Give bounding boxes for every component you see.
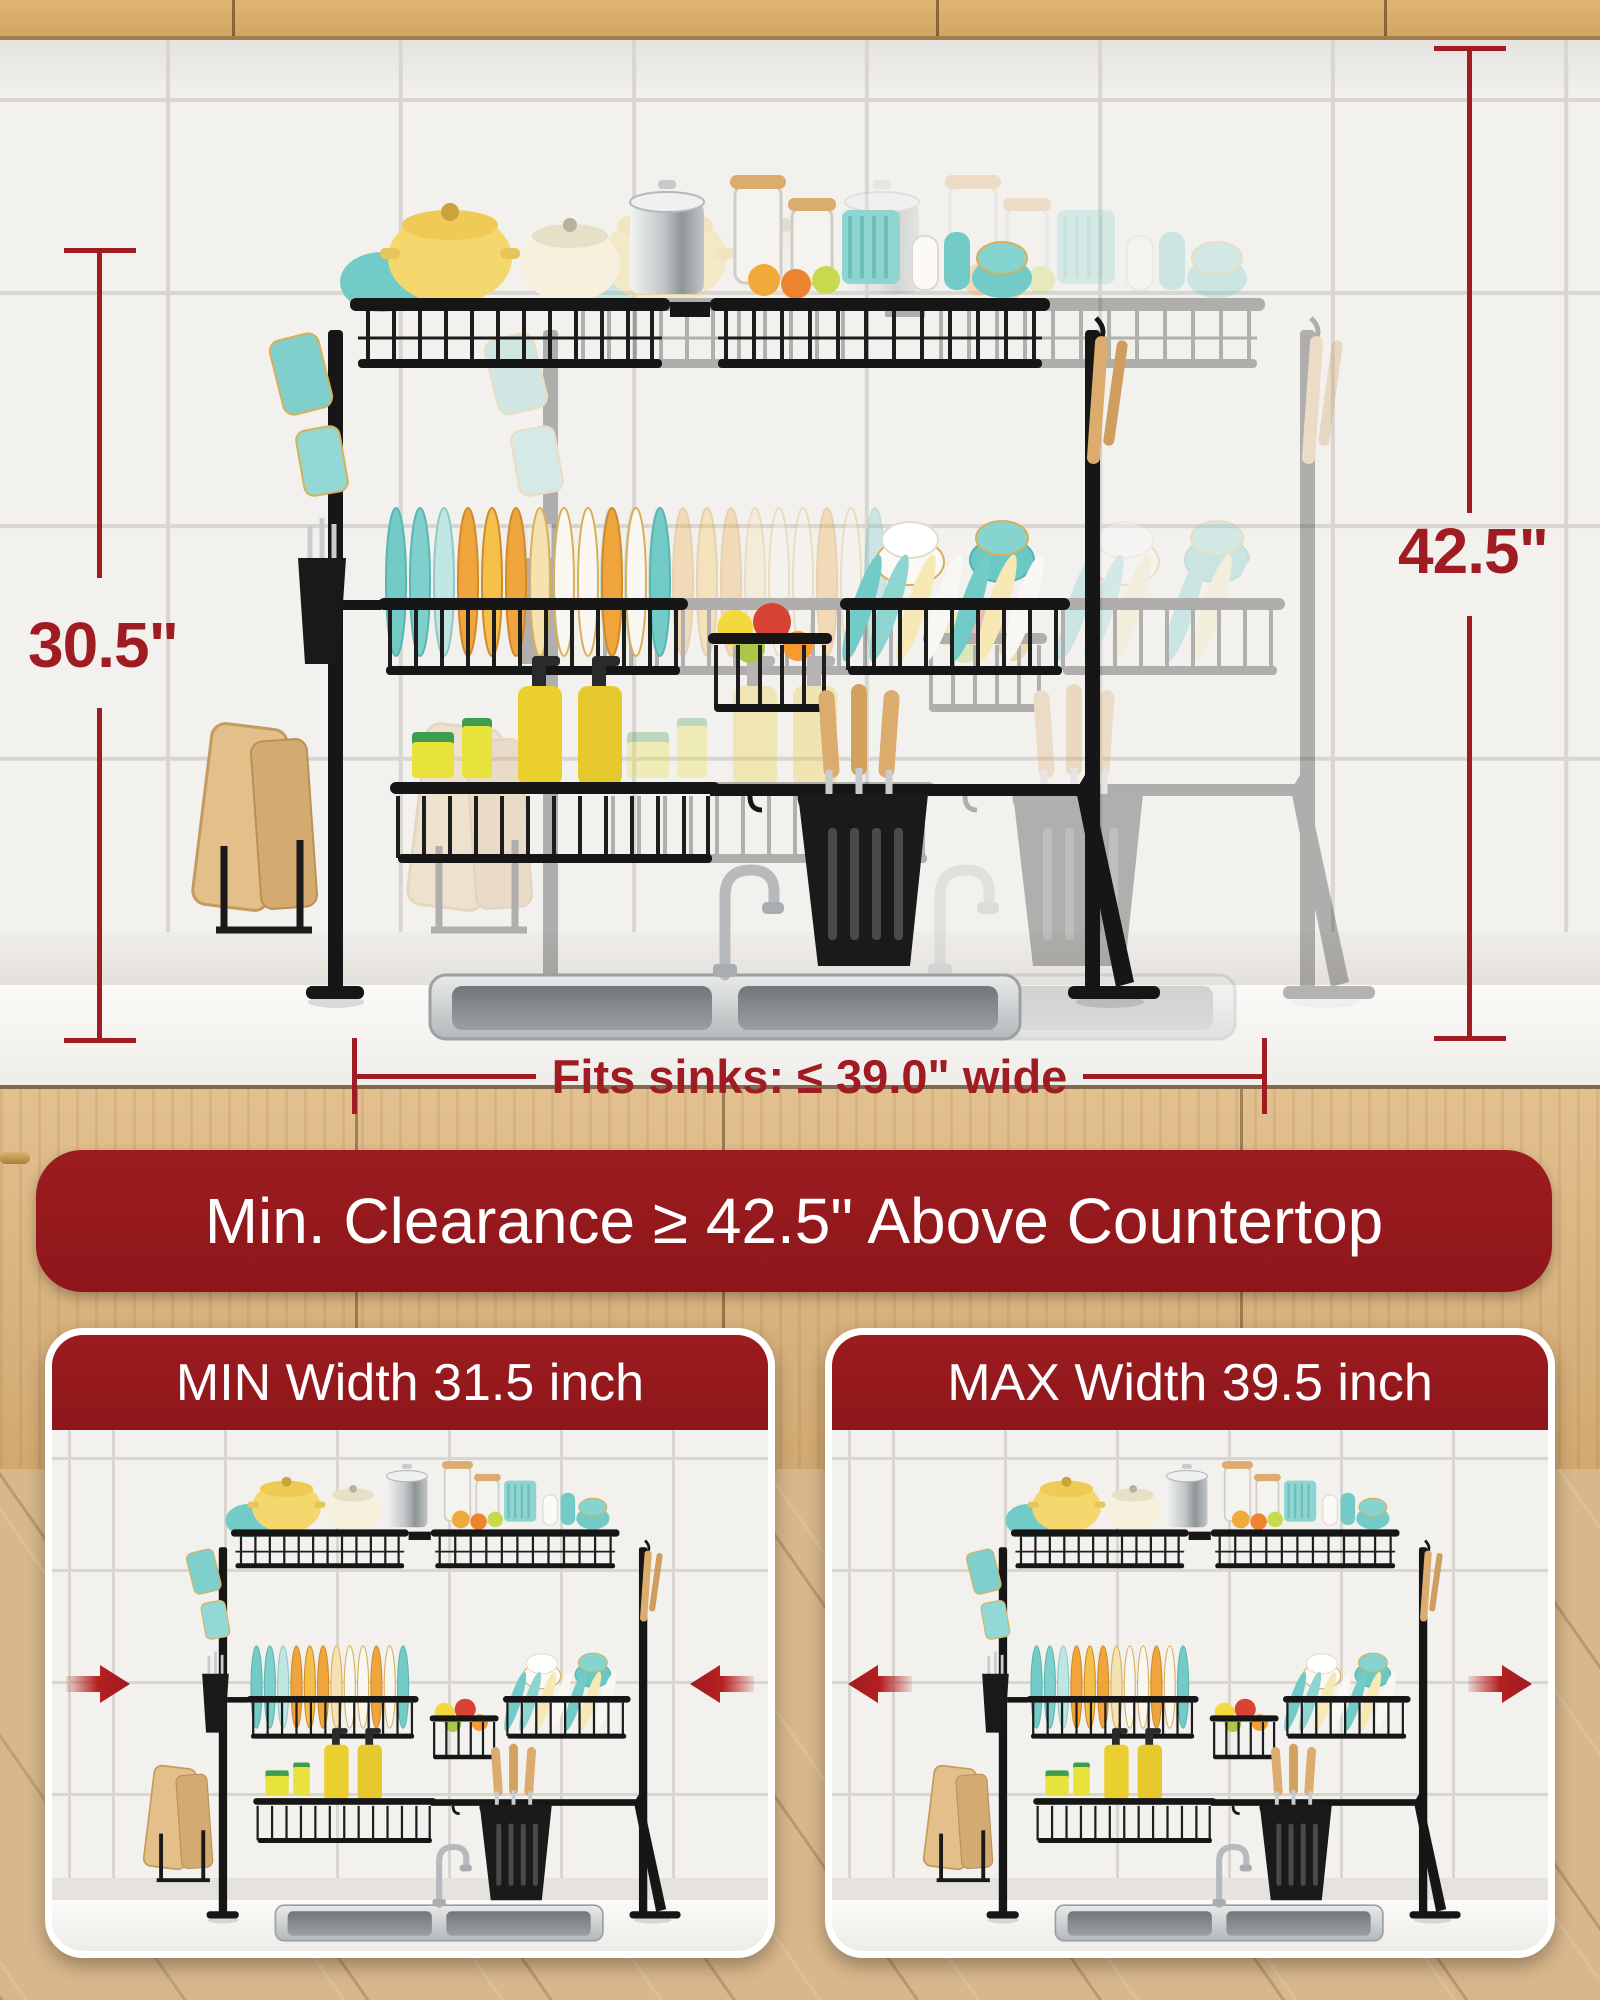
- dimension-line: [97, 253, 102, 578]
- cabinet-seam: [232, 0, 235, 36]
- dimension-line: [1467, 616, 1472, 1038]
- clearance-banner: Min. Clearance ≥ 42.5" Above Countertop: [36, 1150, 1552, 1292]
- max-width-card: MAX Width 39.5 inch: [825, 1328, 1555, 1958]
- dimension-label-sink-width: Fits sinks: ≤ 39.0" wide: [552, 1049, 1068, 1104]
- arrow-left-icon: [846, 1662, 912, 1706]
- sink-width-dimension: Fits sinks: ≤ 39.0" wide: [352, 1036, 1267, 1116]
- dish-rack-illustration: [120, 1436, 700, 1947]
- max-width-card-body: [832, 1430, 1548, 1951]
- dimension-line: [97, 708, 102, 1040]
- dimension-tick: [1262, 1038, 1267, 1114]
- dimension-label-height: 30.5": [28, 608, 173, 682]
- min-width-card-header: MIN Width 31.5 inch: [52, 1335, 768, 1430]
- product-infographic: 30.5" 42.5" Fits sinks: ≤ 39.0" wide Min…: [0, 0, 1600, 2000]
- dish-rack-illustration: [900, 1436, 1480, 1947]
- cabinet-seam: [936, 0, 939, 36]
- dimension-line: [1467, 51, 1472, 513]
- dish-rack-illustration: [150, 130, 1410, 1050]
- dimension-tick: [64, 1038, 136, 1043]
- dimension-line: [1083, 1074, 1262, 1079]
- min-width-card: MIN Width 31.5 inch: [45, 1328, 775, 1958]
- max-width-card-header: MAX Width 39.5 inch: [832, 1335, 1548, 1430]
- dimension-label-clearance: 42.5": [1398, 514, 1543, 588]
- dimension-tick: [1434, 1036, 1506, 1041]
- arrow-left-icon: [688, 1662, 754, 1706]
- clearance-banner-text: Min. Clearance ≥ 42.5" Above Countertop: [205, 1184, 1384, 1258]
- max-width-label: MAX Width 39.5 inch: [947, 1353, 1433, 1413]
- dimension-line: [357, 1074, 536, 1079]
- cabinet-seam: [1384, 0, 1387, 36]
- arrow-right-icon: [1468, 1662, 1534, 1706]
- dish-rack: [191, 175, 1160, 1039]
- cabinet-handle: [0, 1152, 30, 1164]
- min-width-label: MIN Width 31.5 inch: [176, 1353, 644, 1413]
- upper-cabinets: [0, 0, 1600, 40]
- min-width-card-body: [52, 1430, 768, 1951]
- arrow-right-icon: [66, 1662, 132, 1706]
